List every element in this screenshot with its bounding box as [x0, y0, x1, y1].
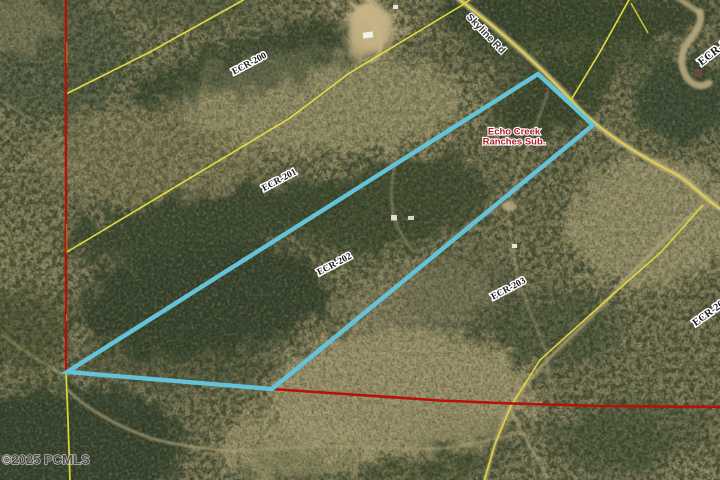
svg-text:©2025 PCMLS: ©2025 PCMLS [2, 452, 90, 467]
svg-text:Ranches Sub.: Ranches Sub. [483, 137, 546, 148]
